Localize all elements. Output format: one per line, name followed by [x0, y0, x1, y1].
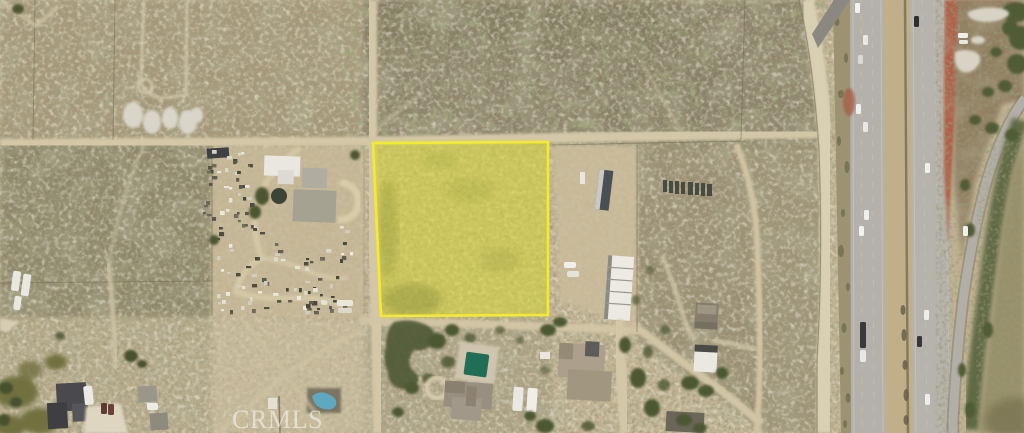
svg-text:CRMLS: CRMLS — [232, 405, 323, 433]
